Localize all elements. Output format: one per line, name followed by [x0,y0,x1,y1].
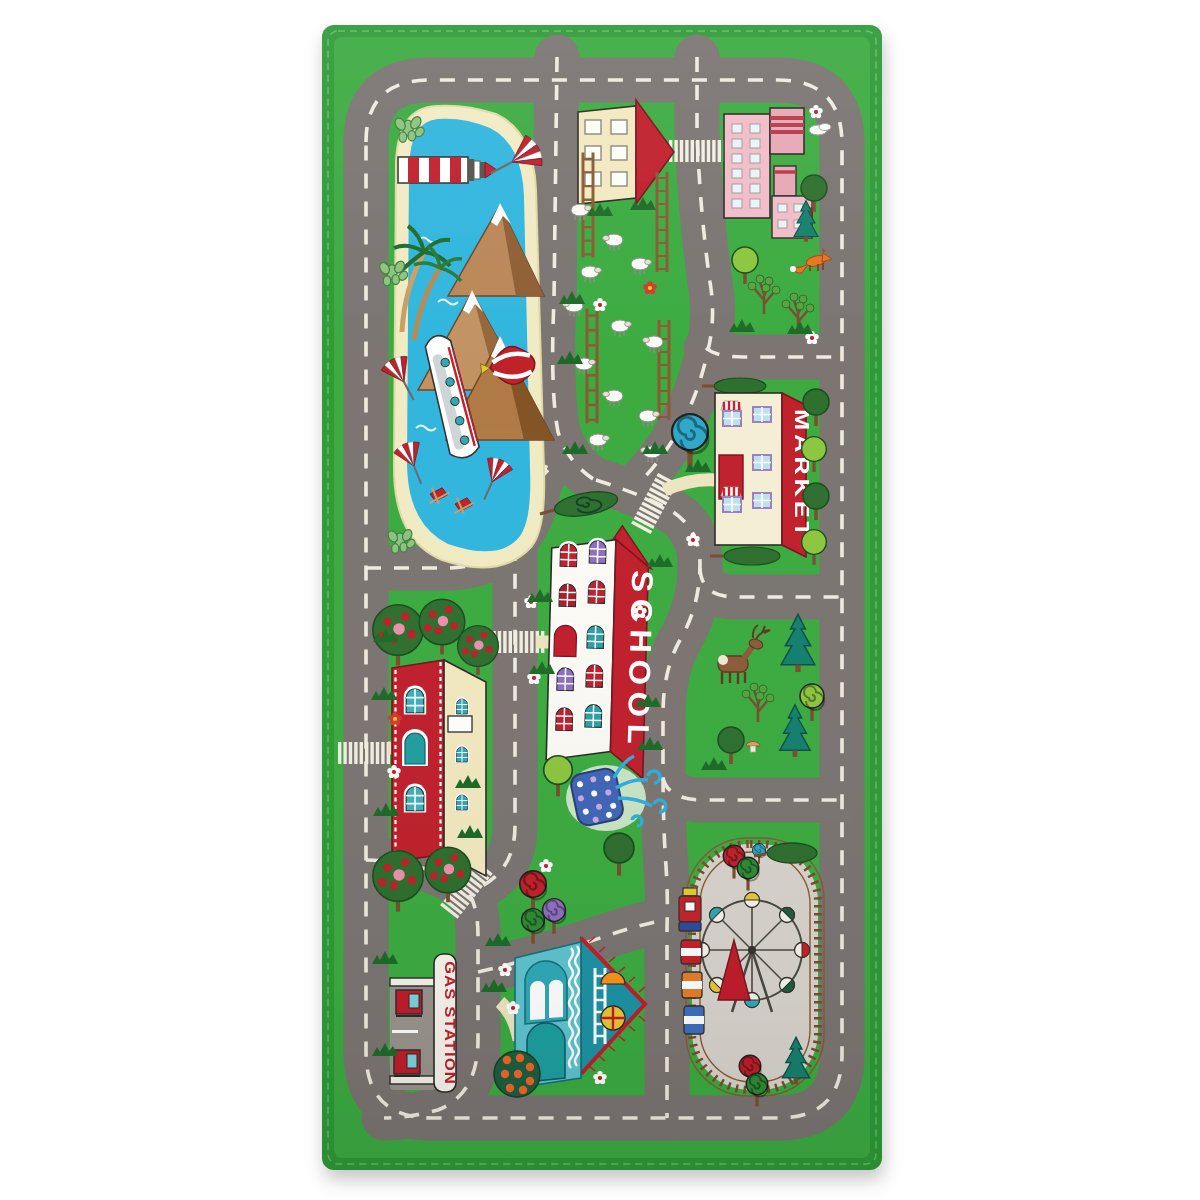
play-rug-photo: MARKET [0,0,1200,1200]
rug: MARKET [322,25,882,1170]
fabric-shading [322,25,882,1170]
